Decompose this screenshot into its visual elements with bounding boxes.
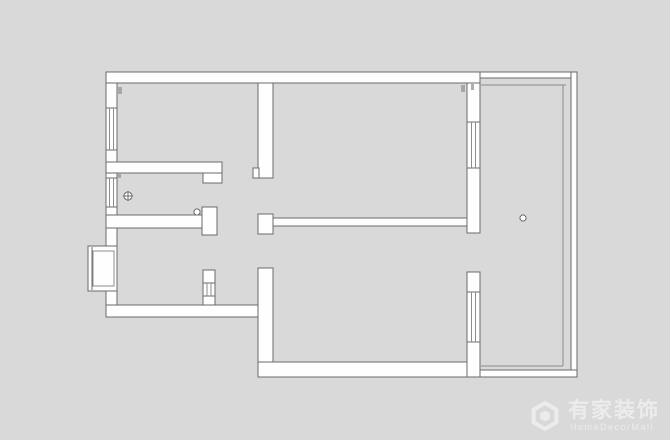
window — [106, 178, 117, 207]
watermark-brand: 有家装饰 — [568, 400, 660, 421]
watermark-text-block: 有家装饰 HomeDecorMall — [568, 400, 660, 432]
wall-segment — [480, 370, 577, 377]
wall-segment — [467, 342, 480, 377]
watermark: 有家装饰 HomeDecorMall — [528, 399, 660, 433]
wall-segment — [258, 83, 273, 178]
wall-segment — [571, 72, 577, 377]
wall-segment — [258, 268, 273, 377]
wall-segment — [467, 272, 480, 292]
tick-mark — [461, 85, 465, 92]
window — [106, 108, 117, 150]
wall-segment — [253, 168, 259, 178]
tick-mark — [117, 174, 121, 178]
wall-segment — [258, 214, 273, 234]
wall-segment — [202, 207, 217, 235]
window — [467, 292, 480, 342]
window — [467, 122, 480, 168]
wall-segment — [106, 83, 117, 108]
window — [203, 283, 215, 296]
wall-segment — [106, 215, 203, 228]
watermark-subtitle: HomeDecorMall — [568, 423, 654, 432]
wall-segment — [258, 362, 480, 377]
wall-segment — [273, 218, 467, 226]
wall-segment — [106, 162, 222, 173]
tick-mark — [471, 84, 474, 90]
wall-segment — [203, 173, 222, 183]
wall-segment — [106, 72, 480, 83]
wall-segment — [106, 305, 268, 317]
brand-hexagon-icon — [528, 399, 562, 433]
tick-mark — [118, 87, 122, 94]
floorplan-svg — [0, 0, 670, 440]
wall-segment — [467, 168, 480, 233]
wall-segment — [480, 72, 577, 78]
fixture-symbol — [520, 215, 526, 221]
floorplan-canvas: 有家装饰 HomeDecorMall — [0, 0, 670, 440]
fixture-symbol — [194, 209, 200, 215]
